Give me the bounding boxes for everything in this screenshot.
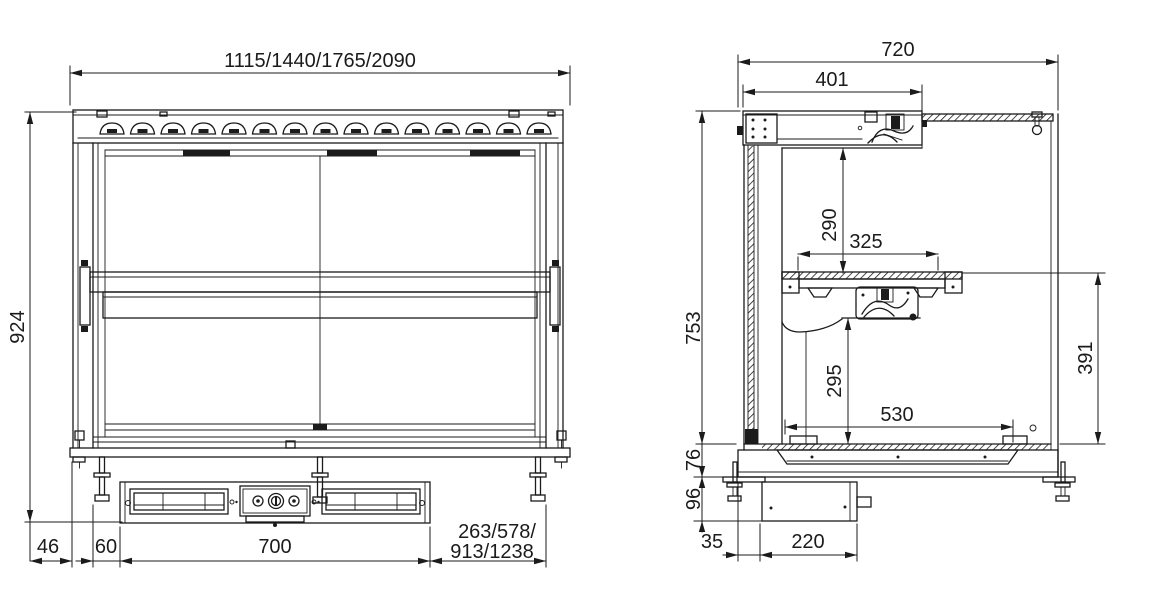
side-front-offset-label: 35 (701, 531, 723, 553)
side-well-height-label: 295 (824, 364, 846, 397)
front-cutout-width-label: 700 (258, 536, 291, 558)
side-roof-strip (922, 112, 1053, 135)
front-left-offset-label: 46 (37, 536, 59, 558)
technical-drawing-canvas: 1115/1440/1765/2090 924 (0, 0, 1164, 614)
side-front-glass (744, 145, 758, 450)
dim-side-shelf-to-floor: 391 (962, 273, 1105, 444)
front-left-inset-label: 60 (95, 536, 117, 558)
vent-grille-left (130, 489, 228, 514)
control-box-under (762, 482, 871, 521)
side-canopy-to-shelf-label: 290 (819, 208, 841, 241)
side-overall-height-label: 753 (683, 311, 705, 344)
adjustable-foot-right (530, 457, 546, 501)
side-undermount-height-label: 96 (683, 488, 705, 510)
dimensional-drawing: 1115/1440/1765/2090 924 (0, 0, 1164, 614)
front-view-dimensions: 1115/1440/1765/2090 924 (7, 50, 570, 567)
side-well-width-label: 530 (880, 404, 913, 426)
dim-front-bottom-chain: 46 60 700 263/578/ 913/1238 (30, 462, 546, 567)
control-panel (230, 486, 320, 527)
dim-side-overall-depth: 720 (738, 39, 1058, 110)
front-canopy (73, 110, 563, 143)
side-base (723, 450, 1075, 521)
front-overall-height-label: 924 (7, 310, 29, 343)
front-side-walls (73, 143, 563, 448)
side-canopy (737, 111, 927, 145)
dim-side-canopy-depth: 401 (743, 69, 922, 110)
dim-side-well-height: 295 (824, 318, 851, 444)
side-canopy-depth-label: 401 (815, 69, 848, 91)
front-plenum (120, 482, 430, 527)
side-shelf (782, 272, 962, 297)
lamp-clip-row (100, 123, 551, 134)
dim-side-bottom-chain: 35 220 (701, 484, 857, 561)
side-control-box-depth-label: 220 (791, 531, 824, 553)
side-back-wall (1051, 114, 1058, 477)
dim-side-well-width: 530 (785, 404, 1013, 442)
side-shelf-to-floor-label: 391 (1075, 341, 1097, 374)
front-right-segment-label-line1: 263/578/ (458, 521, 536, 543)
shelf-fan-unit (856, 287, 918, 319)
side-view (723, 111, 1075, 521)
canopy-fan-icon (868, 114, 913, 143)
side-base-height-label: 76 (683, 449, 705, 471)
dim-front-overall-width: 1115/1440/1765/2090 (70, 50, 570, 105)
vent-grille-right (322, 489, 420, 514)
front-overall-width-label: 1115/1440/1765/2090 (224, 50, 416, 72)
side-shelf-depth-label: 325 (849, 231, 882, 253)
front-view (70, 110, 570, 527)
adjustable-foot-left (94, 457, 110, 501)
front-right-segment-label-line2: 913/1238 (450, 541, 533, 563)
front-interior (93, 150, 546, 442)
side-overall-depth-label: 720 (881, 39, 914, 61)
